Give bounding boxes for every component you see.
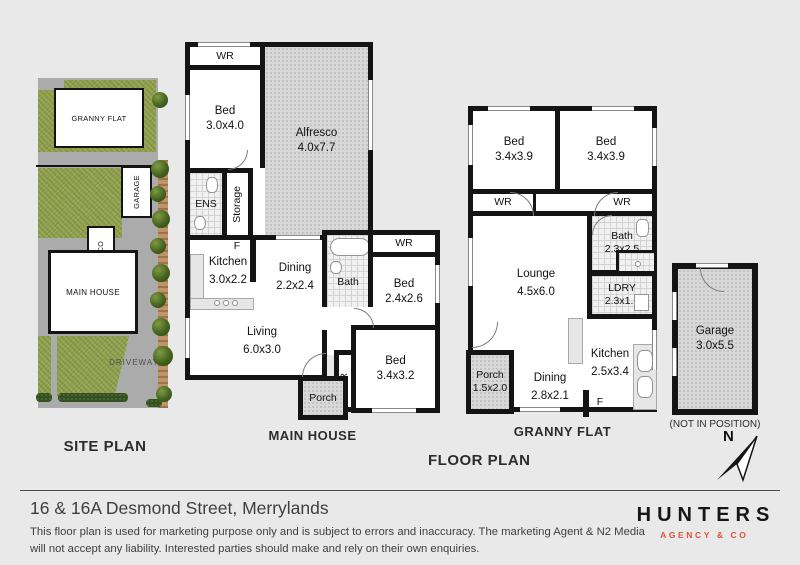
north-compass-icon: N <box>705 428 775 488</box>
stove-icon <box>223 300 229 306</box>
room-label: Bed <box>504 135 524 150</box>
site-main-house-label: MAIN HOUSE <box>66 288 120 297</box>
tree-icon <box>153 346 173 366</box>
hedge <box>58 393 128 402</box>
dining-label: Dining 2.8x2.1 <box>517 368 583 404</box>
window-marker <box>520 407 560 412</box>
tree-icon <box>150 292 166 308</box>
floorplan-page: GRANNY FLAT GARAGE ALFRESCO MAIN HOUSE D… <box>0 0 800 565</box>
wall-stub <box>583 390 589 417</box>
kitchen-label: Kitchen 2.5x3.4 <box>577 344 643 380</box>
toilet-fixture <box>330 261 342 274</box>
room-label: Dining <box>279 262 312 274</box>
window-marker <box>276 235 320 240</box>
window-marker <box>488 106 530 111</box>
agency-logo-name: HUNTERS <box>628 504 778 527</box>
room-gf-bed2: Bed 3.4x3.9 <box>555 106 657 194</box>
window-marker <box>198 42 250 47</box>
room-size: 4.0x7.7 <box>298 141 336 156</box>
room-label: Bed <box>215 104 235 119</box>
room-label: Alfresco <box>296 126 338 141</box>
kitchen-counter <box>190 298 254 310</box>
disclaimer-text: This floor plan is used for marketing pu… <box>30 524 648 558</box>
site-main-house-box: MAIN HOUSE <box>48 250 138 334</box>
toilet-fixture <box>194 216 206 230</box>
window-marker <box>435 265 440 303</box>
window-marker <box>468 238 473 286</box>
room-label: Porch <box>476 369 503 382</box>
room-size: 2.2x2.4 <box>276 280 314 292</box>
room-label: Storage <box>231 186 244 223</box>
site-garage-box: GARAGE <box>121 166 152 218</box>
room-size: 2.4x2.6 <box>385 292 423 307</box>
room-mh-living-open: F Kitchen 3.0x2.2 Dining 2.2x2.4 Living … <box>185 235 327 380</box>
dining-label: Dining 2.2x2.4 <box>262 258 328 294</box>
room-label: Bed <box>394 277 414 292</box>
agency-logo: HUNTERS AGENCY & CO <box>628 504 778 540</box>
tree-icon <box>150 238 166 254</box>
room-size: 2.5x3.4 <box>591 366 629 378</box>
room-label: LDRY <box>608 282 636 295</box>
room-label: Garage <box>696 324 734 339</box>
window-marker <box>372 408 416 413</box>
shower-head-icon <box>635 261 641 267</box>
site-garage-label: GARAGE <box>132 175 141 209</box>
room-size: 3.4x3.9 <box>495 150 533 165</box>
room-label: Kitchen <box>209 256 247 268</box>
room-label: Lounge <box>517 268 555 280</box>
room-label: Porch <box>309 392 336 405</box>
room-gf-ldry: LDRY 2.3x1.5 <box>587 271 657 319</box>
room-label: Bed <box>385 354 405 369</box>
window-marker <box>672 348 677 376</box>
window-marker <box>652 330 657 370</box>
tree-icon <box>152 210 170 228</box>
room-size: 3.0x5.5 <box>696 339 734 354</box>
tree-icon <box>156 386 172 402</box>
laundry-tub-fixture <box>634 294 649 311</box>
agency-logo-tagline: AGENCY & CO <box>628 530 778 540</box>
room-mh-storage: Storage <box>222 168 253 240</box>
lounge-label: Lounge 4.5x6.0 <box>501 264 571 300</box>
fridge-label: F <box>230 240 244 253</box>
window-marker <box>592 106 634 111</box>
room-size: 6.0x3.0 <box>243 344 281 356</box>
room-size: 2.8x2.1 <box>531 390 569 402</box>
room-label: ENS <box>195 198 217 211</box>
property-address: 16 & 16A Desmond Street, Merrylands <box>30 498 329 519</box>
room-mh-bath: Bath <box>322 230 374 312</box>
room-label: Bed <box>596 135 616 150</box>
tree-icon <box>152 264 170 282</box>
site-plan-title: SITE PLAN <box>40 438 170 455</box>
room-label: Dining <box>534 372 567 384</box>
living-label: Living 6.0x3.0 <box>226 322 298 358</box>
window-marker <box>185 318 190 358</box>
tree-icon <box>151 160 169 178</box>
room-size: 3.0x4.0 <box>206 119 244 134</box>
hedge <box>36 393 52 402</box>
room-gf-bed1: Bed 3.4x3.9 <box>468 106 560 194</box>
room-label: Kitchen <box>591 348 629 360</box>
tree-icon <box>152 92 168 108</box>
room-size: 4.5x6.0 <box>517 286 555 298</box>
sink-fixture <box>636 219 649 237</box>
room-mh-porch: Porch <box>298 376 348 420</box>
window-marker <box>368 80 373 150</box>
footer-divider <box>20 490 780 491</box>
room-size: 1.5x2.0 <box>473 382 507 395</box>
room-gf-porch: Porch 1.5x2.0 <box>466 350 514 414</box>
room-label: Bath <box>611 230 633 243</box>
sink-fixture <box>206 177 218 193</box>
room-label: Bath <box>337 276 359 289</box>
room-mh-alfresco: Alfresco 4.0x7.7 <box>260 42 373 240</box>
bathtub-fixture <box>330 238 370 256</box>
main-house-title: MAIN HOUSE <box>185 428 440 443</box>
site-granny-flat-label: GRANNY FLAT <box>71 114 126 123</box>
room-size: 3.4x3.9 <box>587 150 625 165</box>
window-marker <box>652 128 657 166</box>
room-label: WR <box>216 50 234 63</box>
floor-plan-title: FLOOR PLAN <box>428 452 531 469</box>
tree-icon <box>152 318 170 336</box>
window-marker <box>185 95 190 140</box>
room-mh-ens: ENS <box>185 168 227 240</box>
room-label: Living <box>247 326 277 338</box>
kitchen-label: Kitchen 3.0x2.2 <box>194 252 262 288</box>
room-size: 3.4x3.2 <box>377 369 415 384</box>
fridge-label: F <box>593 396 607 409</box>
window-marker <box>672 292 677 320</box>
room-mh-bed1: Bed 3.0x4.0 <box>185 65 265 173</box>
granny-flat-title: GRANNY FLAT <box>465 424 660 439</box>
site-granny-flat-box: GRANNY FLAT <box>54 88 144 148</box>
stove-icon <box>214 300 220 306</box>
room-size: 3.0x2.2 <box>209 274 247 286</box>
window-marker <box>468 125 473 165</box>
tree-icon <box>150 186 166 202</box>
room-mh-bed3: Bed 3.4x3.2 <box>351 325 440 413</box>
room-label: WR <box>395 237 413 250</box>
grass-rear-strip <box>38 336 51 396</box>
stove-icon <box>232 300 238 306</box>
